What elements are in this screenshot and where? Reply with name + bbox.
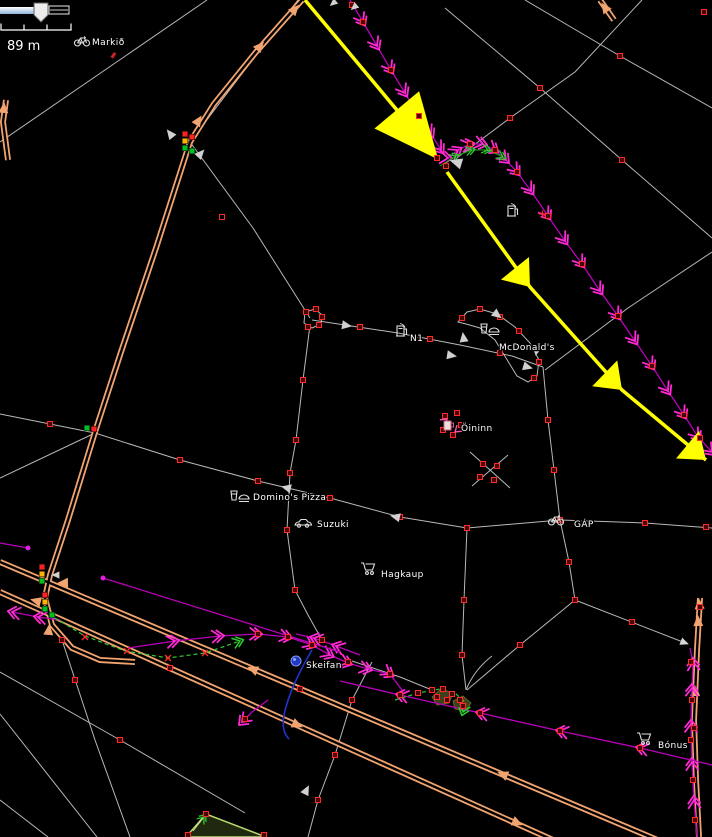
scale-bar: 89 m — [1, 24, 71, 55]
bar-icon — [444, 421, 454, 430]
poi-label: Hagkaup — [381, 570, 424, 580]
major-road-network[interactable] — [0, 0, 712, 837]
road-tick — [110, 52, 116, 59]
map-canvas[interactable]: Markið N1 McDonald's Öininn Domino's Piz… — [0, 0, 712, 837]
zoom-slider[interactable] — [0, 3, 69, 22]
poi-label: Bónus — [658, 740, 688, 751]
major-road-arrows — [0, 0, 705, 830]
poi-suzuki[interactable]: Suzuki — [295, 520, 349, 531]
place-icon — [291, 656, 301, 666]
poi-gap[interactable]: GÁP — [549, 516, 594, 531]
poi-label: Suzuki — [317, 520, 349, 530]
poi-skeifan[interactable]: Skeifan — [291, 656, 342, 671]
poi-label: Domino's Pizza — [253, 493, 326, 503]
fast-food-icon — [231, 491, 249, 502]
car-icon — [295, 520, 312, 528]
scale-bar-ruler — [1, 24, 71, 31]
poi-bonus[interactable]: Bónus — [637, 733, 688, 751]
poi-label: Skeifan — [306, 661, 342, 671]
route-highlight[interactable] — [305, 0, 706, 460]
poi-label: N1 — [410, 334, 423, 344]
poi-dominos-pizza[interactable]: Domino's Pizza — [231, 491, 326, 503]
poi-oininn[interactable]: Öininn — [440, 416, 493, 435]
scale-label: 89 m — [7, 39, 40, 54]
poi-label: GÁP — [574, 518, 594, 530]
lone-node[interactable] — [220, 215, 225, 220]
fuel-pump-icon — [507, 204, 518, 217]
fast-food-icon — [481, 324, 499, 335]
track-nodes[interactable] — [48, 3, 709, 837]
poi-hagkaup[interactable]: Hagkaup — [361, 563, 424, 580]
survey-tracks[interactable] — [55, 150, 503, 712]
park-area-polygon[interactable] — [186, 814, 266, 837]
poi-markid[interactable]: Markið — [75, 37, 125, 49]
poi-label: McDonald's — [499, 343, 555, 353]
zoom-slider-handle[interactable] — [34, 3, 48, 22]
shopping-cart-icon — [361, 563, 375, 574]
poi-fuel-unnamed[interactable] — [507, 204, 518, 217]
zoom-slider-track-left[interactable] — [0, 7, 34, 14]
shopping-cart-icon — [637, 733, 651, 744]
poi-label: Öininn — [461, 423, 493, 434]
bicycle-icon — [75, 37, 90, 47]
poi-label: Markið — [92, 38, 125, 48]
